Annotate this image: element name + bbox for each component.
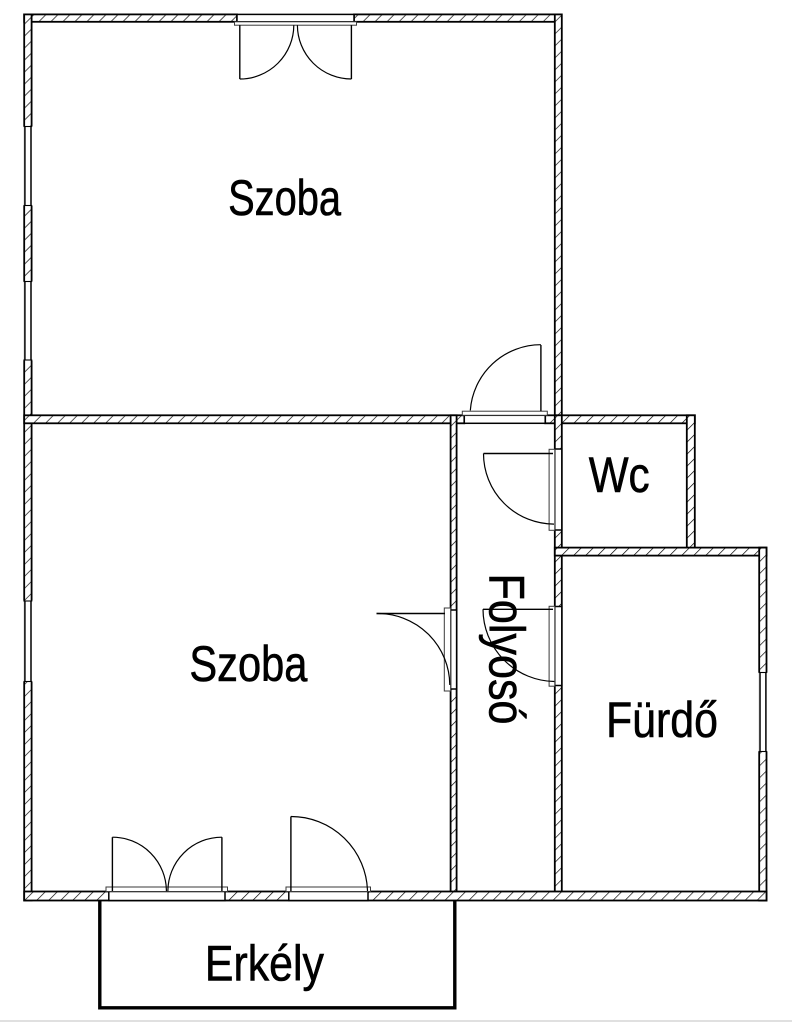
svg-text:Szoba: Szoba (228, 170, 341, 226)
svg-text:Fürdő: Fürdő (606, 692, 718, 748)
svg-text:Szoba: Szoba (189, 636, 307, 692)
svg-text:Wc: Wc (589, 447, 650, 503)
svg-text:Erkély: Erkély (205, 936, 324, 992)
svg-text:Folyosó: Folyosó (478, 574, 534, 725)
